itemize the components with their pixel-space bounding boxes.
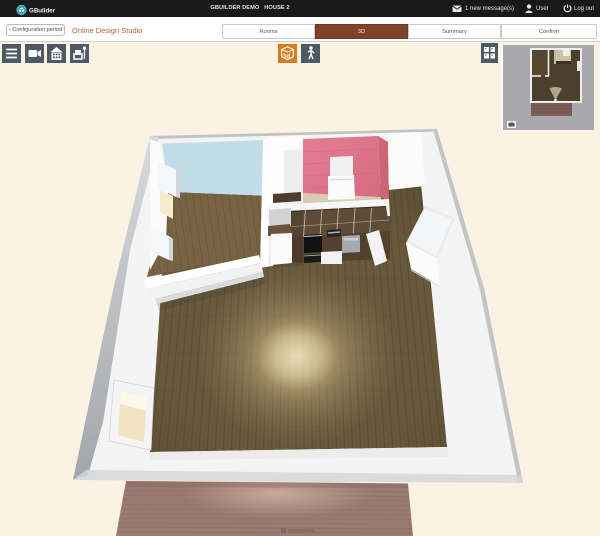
svg-text:GBuilder: GBuilder <box>29 8 56 15</box>
svg-text:3d: 3d <box>283 53 291 60</box>
